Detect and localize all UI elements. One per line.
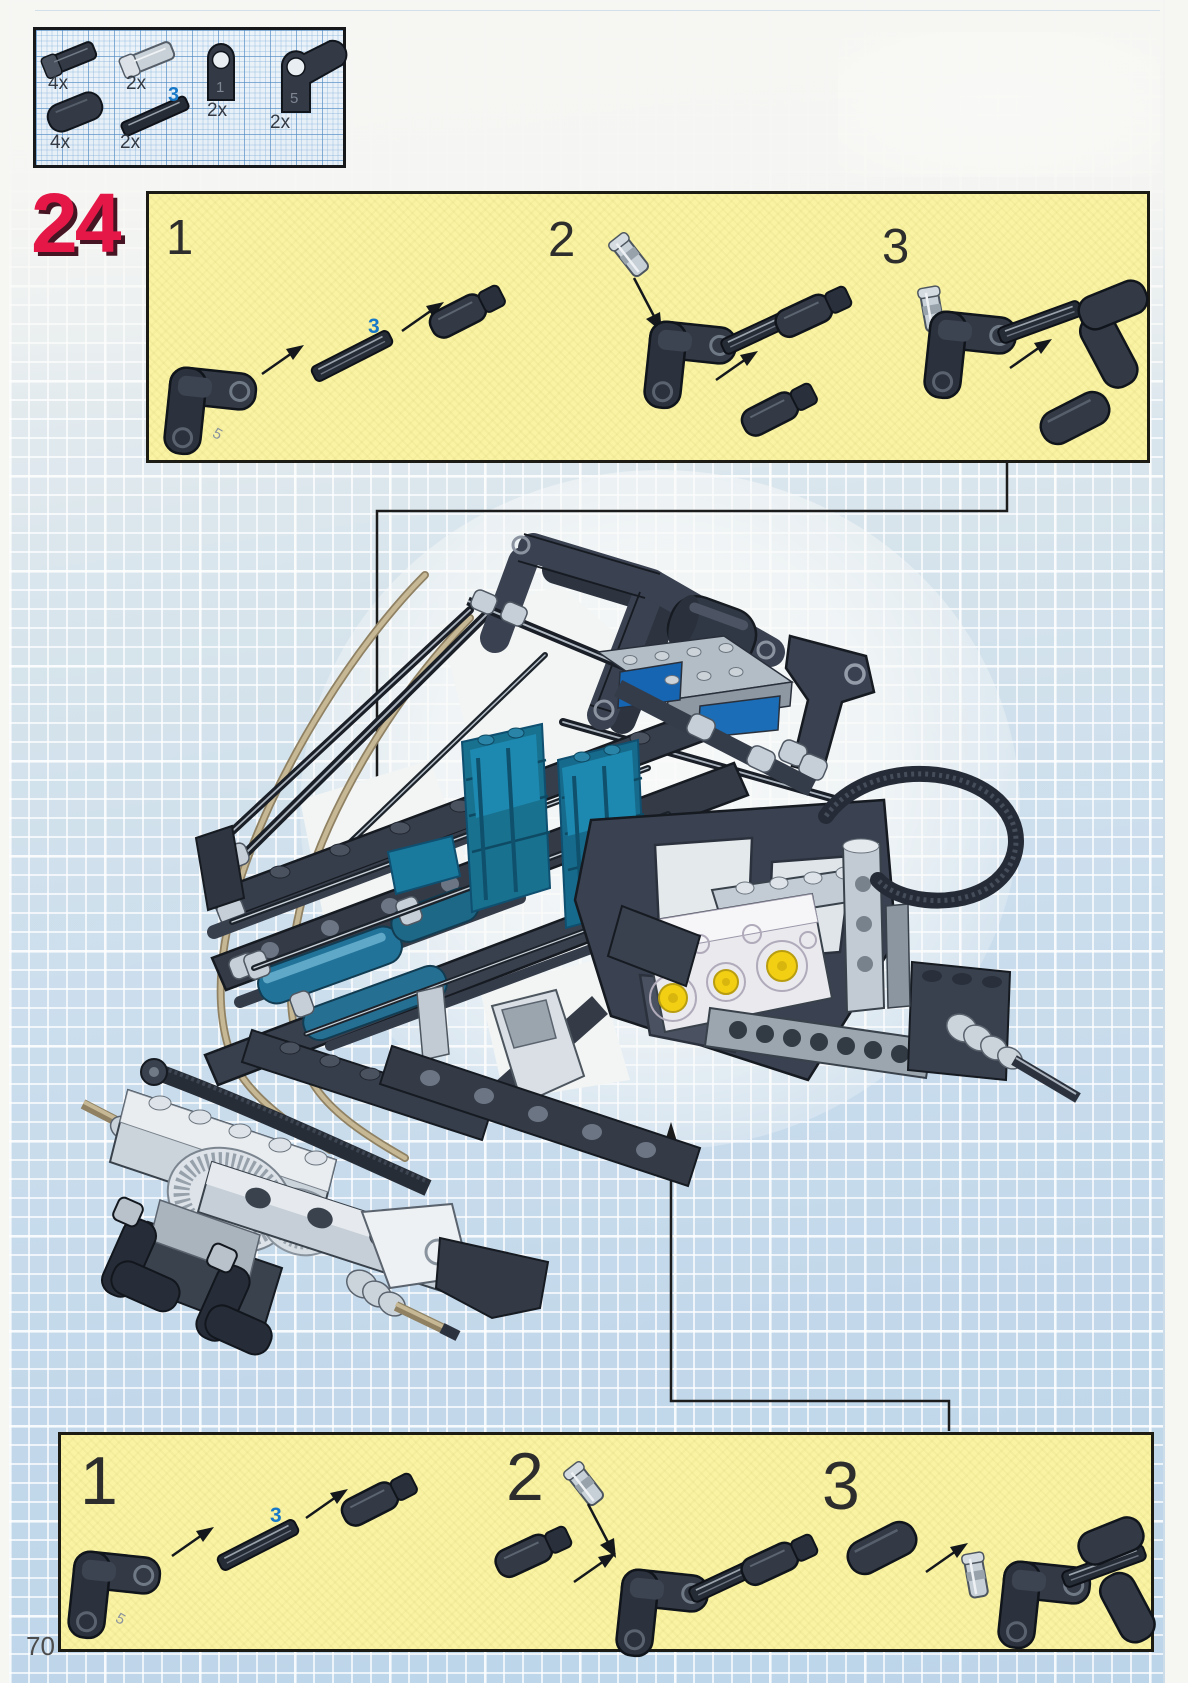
svg-text:2x: 2x bbox=[126, 73, 147, 94]
svg-text:5: 5 bbox=[290, 90, 298, 107]
svg-text:4x: 4x bbox=[48, 73, 69, 94]
svg-text:3: 3 bbox=[270, 1504, 282, 1527]
svg-text:3: 3 bbox=[168, 84, 179, 106]
svg-text:5: 5 bbox=[113, 1610, 129, 1629]
svg-text:3: 3 bbox=[368, 315, 380, 338]
svg-text:5: 5 bbox=[210, 425, 226, 444]
svg-text:2x: 2x bbox=[120, 132, 141, 153]
svg-text:4x: 4x bbox=[50, 132, 71, 153]
svg-text:2x: 2x bbox=[270, 112, 291, 133]
svg-text:2x: 2x bbox=[207, 100, 228, 121]
svg-text:1: 1 bbox=[216, 79, 224, 96]
